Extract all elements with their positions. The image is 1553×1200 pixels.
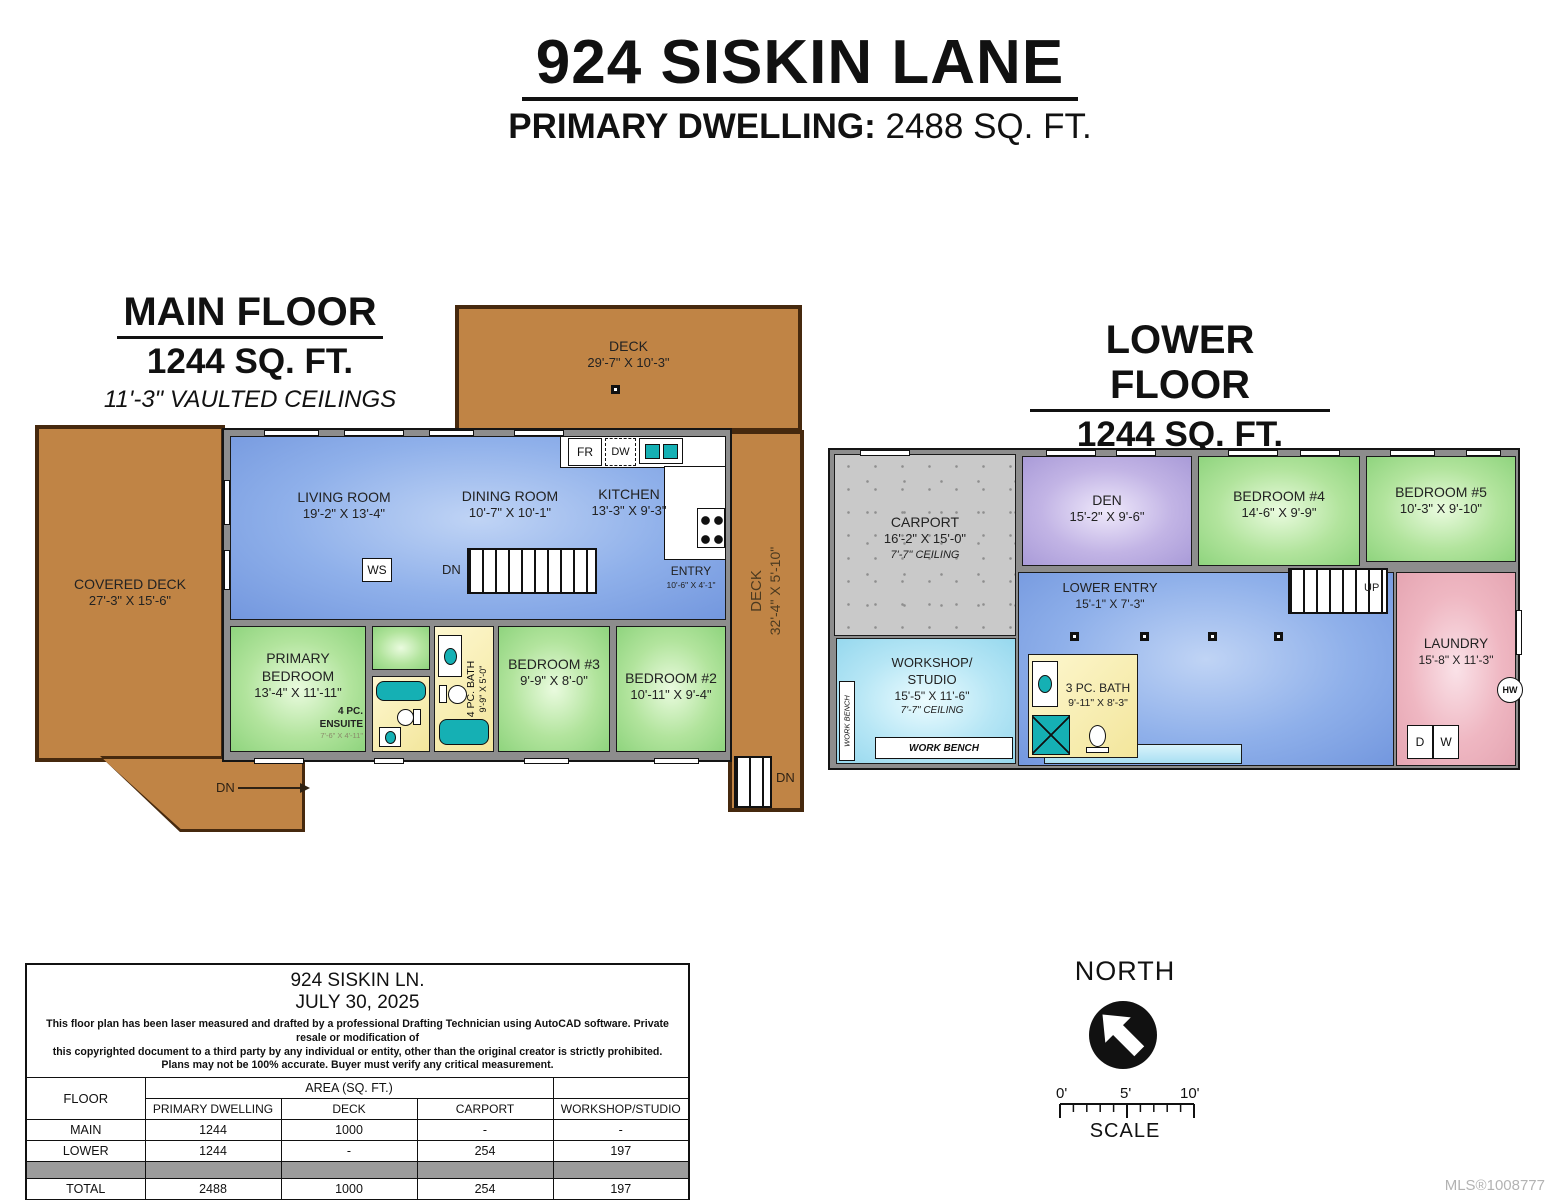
deck-top-dims: 29'-7" X 10'-3" bbox=[459, 355, 798, 372]
bedroom3-dims: 9'-9" X 8'-0" bbox=[499, 673, 609, 690]
deck-top: DECK 29'-7" X 10'-3" bbox=[455, 305, 802, 432]
living-room-dims: 19'-2" X 13'-4" bbox=[254, 506, 434, 523]
dn-label: DN bbox=[776, 770, 795, 785]
row-lower-v3: 254 bbox=[417, 1141, 553, 1162]
window bbox=[1466, 450, 1501, 456]
lower-house: CARPORT 16'-2" X 15'-0" 7'-7" CEILING DE… bbox=[828, 448, 1520, 770]
primary-bedroom-name1: PRIMARY bbox=[231, 649, 365, 667]
up-label: UP bbox=[1364, 582, 1379, 594]
deck-top-name: DECK bbox=[459, 337, 798, 355]
washer-label: W bbox=[1440, 735, 1451, 749]
shower-icon bbox=[1032, 715, 1070, 755]
covered-deck: COVERED DECK 27'-3" X 15'-6" bbox=[35, 425, 225, 762]
ensuite-dims: 7'-6" X 4'-11" bbox=[287, 731, 363, 741]
deck-down-arrow: DN bbox=[216, 780, 310, 795]
window bbox=[224, 480, 230, 525]
disclaimer-line2: this copyrighted document to a third par… bbox=[31, 1046, 684, 1060]
scale-tick-10: 10' bbox=[1180, 1086, 1200, 1102]
deck-stairs bbox=[734, 756, 772, 808]
main-house: FR DW LIVING ROOM 19'-2" X 13'-4" DINING… bbox=[222, 428, 732, 762]
row-lower-v1: 1244 bbox=[145, 1141, 281, 1162]
stove-icon bbox=[697, 508, 725, 548]
room-primary-bedroom: PRIMARY BEDROOM 13'-4" X 11'-11" 4 PC. E… bbox=[230, 626, 366, 752]
table-row: LOWER 1244 - 254 197 bbox=[27, 1141, 688, 1162]
entry-dims: 10'-6" X 4'-1" bbox=[656, 580, 726, 591]
dining-room-dims: 10'-7" X 10'-1" bbox=[430, 505, 590, 522]
total-v2: 1000 bbox=[281, 1179, 417, 1200]
deck-right-label: DECK 32'-4" X 5'-10" bbox=[748, 547, 784, 635]
window bbox=[429, 430, 474, 436]
window bbox=[1516, 610, 1522, 655]
wood-stove-label: WS bbox=[367, 563, 386, 577]
sink-icon bbox=[438, 635, 462, 677]
row-main-floor: MAIN bbox=[27, 1120, 145, 1141]
primary-bedroom-name2: BEDROOM bbox=[231, 667, 365, 685]
window bbox=[254, 758, 304, 764]
bedroom2-name: BEDROOM #2 bbox=[617, 669, 725, 687]
scale-tick-5: 5' bbox=[1120, 1086, 1131, 1102]
dining-room-name: DINING ROOM bbox=[430, 487, 590, 505]
bedroom2-label: BEDROOM #2 10'-11" X 9'-4" bbox=[617, 669, 725, 704]
work-bench-label: WORK BENCH bbox=[842, 695, 851, 747]
wood-stove: WS bbox=[362, 558, 392, 582]
workshop-name1: WORKSHOP/ bbox=[857, 655, 1007, 672]
bedroom5-dims: 10'-3" X 9'-10" bbox=[1367, 501, 1515, 518]
room-laundry: LAUNDRY 15'-8" X 11'-3" HW D W bbox=[1396, 572, 1516, 766]
bathtub-icon bbox=[439, 719, 489, 745]
sink-basin-icon bbox=[645, 444, 660, 459]
sink-icon bbox=[1032, 661, 1058, 707]
entry-name: ENTRY bbox=[656, 564, 726, 580]
lower-floor-title: LOWER FLOOR bbox=[1030, 318, 1330, 412]
carport-label: CARPORT 16'-2" X 15'-0" 7'-7" CEILING bbox=[835, 513, 1015, 562]
laundry-name: LAUNDRY bbox=[1397, 635, 1515, 653]
col-carport: CARPORT bbox=[417, 1099, 553, 1120]
row-main-v3: - bbox=[417, 1120, 553, 1141]
bedroom3-label: BEDROOM #3 9'-9" X 8'-0" bbox=[499, 655, 609, 690]
den-name: DEN bbox=[1023, 491, 1191, 509]
room-lower-bath: 3 PC. BATH 9'-11" X 8'-3" bbox=[1028, 654, 1138, 758]
room-bedroom5: BEDROOM #5 10'-3" X 9'-10" bbox=[1366, 456, 1516, 562]
toilet-icon bbox=[397, 709, 414, 726]
info-table-header: 924 SISKIN LN. JULY 30, 2025 This floor … bbox=[27, 965, 688, 1077]
main-bath-label: 4 PC. BATH 9'-9" X 5'-0" bbox=[465, 661, 489, 717]
lower-entry-dims: 15'-1" X 7'-3" bbox=[1030, 597, 1190, 613]
page-title: 924 SISKIN LANE bbox=[522, 30, 1078, 101]
covered-deck-dims: 27'-3" X 15'-6" bbox=[39, 593, 221, 610]
post-icon bbox=[1274, 632, 1283, 641]
spacer-row bbox=[27, 1162, 688, 1179]
workshop-name2: STUDIO bbox=[857, 672, 1007, 689]
main-floor-area: 1244 SQ. FT. bbox=[95, 342, 405, 382]
post-icon bbox=[1208, 632, 1217, 641]
kitchen-dims: 13'-3" X 9'-3" bbox=[569, 503, 689, 520]
total-row: TOTAL 2488 1000 254 197 bbox=[27, 1179, 688, 1200]
toilet-icon bbox=[1089, 725, 1106, 747]
mls-number: MLS®1008777 bbox=[1445, 1177, 1545, 1194]
floor-plan-page: 924 SISKIN LANE PRIMARY DWELLING: 2488 S… bbox=[0, 0, 1553, 1200]
sink-basin-icon bbox=[444, 648, 457, 665]
bedroom4-dims: 14'-6" X 9'-9" bbox=[1199, 505, 1359, 522]
deck-right: DECK 32'-4" X 5'-10" DN bbox=[728, 430, 804, 812]
sink-basin-icon bbox=[663, 444, 678, 459]
bedroom3-name: BEDROOM #3 bbox=[499, 655, 609, 673]
total-label: TOTAL bbox=[27, 1179, 145, 1200]
main-bath-name: 4 PC. BATH bbox=[465, 661, 478, 717]
toilet-icon bbox=[413, 709, 421, 725]
fridge-label: FR bbox=[577, 445, 593, 459]
main-bath-dims: 9'-9" X 5'-0" bbox=[478, 661, 489, 717]
row-main-v4: - bbox=[553, 1120, 688, 1141]
window bbox=[860, 450, 910, 456]
table-disclaimer: This floor plan has been laser measured … bbox=[31, 1018, 684, 1073]
total-v1: 2488 bbox=[145, 1179, 281, 1200]
living-room-name: LIVING ROOM bbox=[254, 488, 434, 506]
workshop-dims: 15'-5" X 11'-6" bbox=[857, 689, 1007, 705]
deck-right-name: DECK bbox=[748, 547, 767, 635]
window bbox=[264, 430, 319, 436]
scale-label: SCALE bbox=[1060, 1120, 1190, 1143]
main-floor-title: MAIN FLOOR bbox=[117, 290, 382, 339]
table-date: JULY 30, 2025 bbox=[31, 992, 684, 1014]
scale-tick-0: 0' bbox=[1056, 1086, 1067, 1102]
bedroom2-dims: 10'-11" X 9'-4" bbox=[617, 687, 725, 704]
floor-header-cell: FLOOR bbox=[27, 1078, 145, 1120]
work-bench-label: WORK BENCH bbox=[909, 743, 979, 754]
laundry-label: LAUNDRY 15'-8" X 11'-3" bbox=[1397, 635, 1515, 668]
carport-dims: 16'-2" X 15'-0" bbox=[835, 531, 1015, 548]
col-deck: DECK bbox=[281, 1099, 417, 1120]
disclaimer-line3: Plans may not be 100% accurate. Buyer mu… bbox=[31, 1059, 684, 1073]
laundry-dims: 15'-8" X 11'-3" bbox=[1397, 653, 1515, 669]
row-main-v1: 1244 bbox=[145, 1120, 281, 1141]
table-row: MAIN 1244 1000 - - bbox=[27, 1120, 688, 1141]
primary-bedroom-dims: 13'-4" X 11'-11" bbox=[231, 685, 365, 702]
toilet-icon bbox=[1086, 747, 1109, 753]
kitchen-name: KITCHEN bbox=[569, 485, 689, 503]
row-lower-floor: LOWER bbox=[27, 1141, 145, 1162]
window bbox=[374, 758, 404, 764]
total-v3: 254 bbox=[417, 1179, 553, 1200]
lower-bath-dims: 9'-11" X 8'-3" bbox=[1059, 697, 1137, 711]
window bbox=[1390, 450, 1435, 456]
subtitle-label: PRIMARY DWELLING: bbox=[508, 107, 875, 146]
north-arrow-icon bbox=[1086, 998, 1160, 1072]
deck-top-label: DECK 29'-7" X 10'-3" bbox=[459, 337, 798, 372]
covered-deck-label: COVERED DECK 27'-3" X 15'-6" bbox=[39, 575, 221, 610]
kitchen-label: KITCHEN 13'-3" X 9'-3" bbox=[569, 485, 689, 520]
den-label: DEN 15'-2" X 9'-6" bbox=[1023, 491, 1191, 526]
empty-header-cell bbox=[553, 1078, 688, 1099]
covered-deck-name: COVERED DECK bbox=[39, 575, 221, 593]
room-bedroom3: BEDROOM #3 9'-9" X 8'-0" bbox=[498, 626, 610, 752]
bedroom5-name: BEDROOM #5 bbox=[1367, 483, 1515, 501]
den-dims: 15'-2" X 9'-6" bbox=[1023, 509, 1191, 526]
lower-bath-name: 3 PC. BATH bbox=[1059, 681, 1137, 697]
north-label: NORTH bbox=[1060, 956, 1190, 987]
main-floor-ceiling: 11'-3" VAULTED CEILINGS bbox=[95, 386, 405, 414]
lower-entry-label: LOWER ENTRY 15'-1" X 7'-3" bbox=[1030, 580, 1190, 612]
kitchen-sink-icon bbox=[639, 438, 683, 464]
deck-right-dims: 32'-4" X 5'-10" bbox=[767, 547, 785, 635]
window bbox=[224, 550, 230, 590]
dn-label: DN bbox=[216, 780, 235, 795]
col-primary-dwelling: PRIMARY DWELLING bbox=[145, 1099, 281, 1120]
ensuite-label: 4 PC. ENSUITE 7'-6" X 4'-11" bbox=[287, 705, 363, 741]
area-table: FLOOR AREA (SQ. FT.) PRIMARY DWELLING DE… bbox=[27, 1077, 688, 1199]
room-ensuite bbox=[372, 676, 430, 752]
window bbox=[524, 758, 569, 764]
lower-bath-label: 3 PC. BATH 9'-11" X 8'-3" bbox=[1059, 681, 1137, 710]
col-workshop-studio: WORKSHOP/STUDIO bbox=[553, 1099, 688, 1120]
room-den: DEN 15'-2" X 9'-6" bbox=[1022, 456, 1192, 566]
hot-water-tank: HW bbox=[1497, 677, 1523, 703]
primary-closet bbox=[372, 626, 430, 670]
post-icon bbox=[1070, 632, 1079, 641]
bedroom4-name: BEDROOM #4 bbox=[1199, 487, 1359, 505]
window bbox=[1300, 450, 1340, 456]
window bbox=[344, 430, 404, 436]
hot-water-label: HW bbox=[1503, 685, 1518, 695]
row-lower-v2: - bbox=[281, 1141, 417, 1162]
toilet-icon bbox=[439, 685, 447, 703]
post-icon bbox=[1140, 632, 1149, 641]
dishwasher-label: DW bbox=[611, 446, 629, 458]
living-room-label: LIVING ROOM 19'-2" X 13'-4" bbox=[254, 488, 434, 523]
info-table: 924 SISKIN LN. JULY 30, 2025 This floor … bbox=[25, 963, 690, 1200]
bedroom4-label: BEDROOM #4 14'-6" X 9'-9" bbox=[1199, 487, 1359, 522]
room-main-bath: 4 PC. BATH 9'-9" X 5'-0" bbox=[434, 626, 494, 752]
ensuite-name1: 4 PC. bbox=[287, 705, 363, 718]
deck-post-icon bbox=[611, 385, 620, 394]
washer: W bbox=[1433, 725, 1459, 759]
dryer: D bbox=[1407, 725, 1433, 759]
entry-label: ENTRY 10'-6" X 4'-1" bbox=[656, 564, 726, 591]
window bbox=[1116, 450, 1156, 456]
lower-entry-name: LOWER ENTRY bbox=[1030, 580, 1190, 597]
dryer-label: D bbox=[1416, 735, 1425, 749]
window bbox=[1228, 450, 1278, 456]
work-bench-horizontal: WORK BENCH bbox=[875, 737, 1013, 759]
carport-ceiling: 7'-7" CEILING bbox=[835, 548, 1015, 562]
bedroom5-label: BEDROOM #5 10'-3" X 9'-10" bbox=[1367, 483, 1515, 518]
header: 924 SISKIN LANE PRIMARY DWELLING: 2488 S… bbox=[80, 30, 1520, 147]
table-address: 924 SISKIN LN. bbox=[31, 970, 684, 992]
workshop-label: WORKSHOP/ STUDIO 15'-5" X 11'-6" 7'-7" C… bbox=[857, 655, 1007, 717]
primary-bedroom-label: PRIMARY BEDROOM 13'-4" X 11'-11" bbox=[231, 649, 365, 702]
room-bedroom4: BEDROOM #4 14'-6" X 9'-9" bbox=[1198, 456, 1360, 566]
dishwasher: DW bbox=[605, 438, 636, 466]
workshop-ceiling: 7'-7" CEILING bbox=[857, 704, 1007, 717]
main-floor-heading: MAIN FLOOR 1244 SQ. FT. 11'-3" VAULTED C… bbox=[95, 290, 405, 414]
window bbox=[654, 758, 699, 764]
area-header-cell: AREA (SQ. FT.) bbox=[145, 1078, 553, 1099]
room-bedroom2: BEDROOM #2 10'-11" X 9'-4" bbox=[616, 626, 726, 752]
right-arrow-icon bbox=[238, 782, 310, 794]
sink-icon bbox=[379, 727, 401, 747]
fridge: FR bbox=[568, 438, 602, 466]
total-v4: 197 bbox=[553, 1179, 688, 1200]
subtitle-value: 2488 SQ. FT. bbox=[886, 107, 1092, 146]
dining-room-label: DINING ROOM 10'-7" X 10'-1" bbox=[430, 487, 590, 522]
disclaimer-line1: This floor plan has been laser measured … bbox=[31, 1018, 684, 1046]
bathtub-icon bbox=[376, 681, 426, 701]
row-lower-v4: 197 bbox=[553, 1141, 688, 1162]
sink-basin-icon bbox=[1038, 675, 1052, 693]
carport-name: CARPORT bbox=[835, 513, 1015, 531]
row-main-v2: 1000 bbox=[281, 1120, 417, 1141]
work-bench-vertical: WORK BENCH bbox=[839, 681, 855, 761]
ensuite-name2: ENSUITE bbox=[287, 718, 363, 731]
window bbox=[514, 430, 564, 436]
room-carport: CARPORT 16'-2" X 15'-0" 7'-7" CEILING bbox=[834, 454, 1016, 636]
main-stairs bbox=[467, 548, 597, 594]
dn-label: DN bbox=[442, 562, 461, 577]
window bbox=[1046, 450, 1096, 456]
room-workshop: WORKSHOP/ STUDIO 15'-5" X 11'-6" 7'-7" C… bbox=[836, 638, 1016, 764]
sink-basin-icon bbox=[385, 731, 396, 744]
scale-bar: 0' 5' 10' bbox=[1052, 1086, 1202, 1124]
page-subtitle: PRIMARY DWELLING: 2488 SQ. FT. bbox=[80, 107, 1520, 147]
